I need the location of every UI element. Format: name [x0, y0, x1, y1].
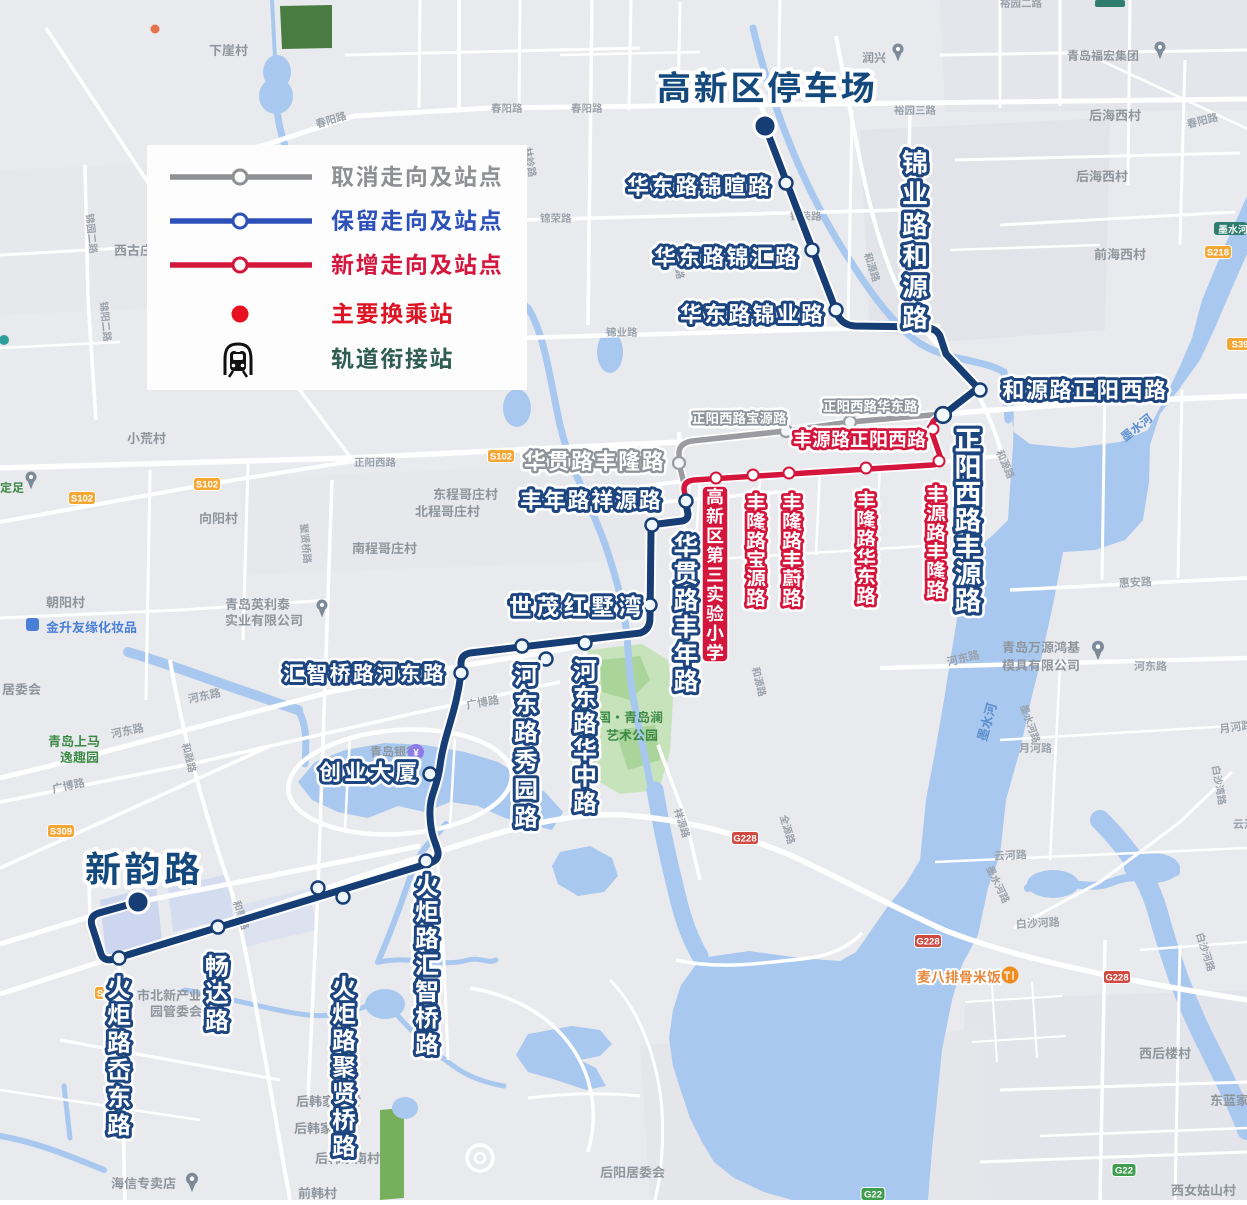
svg-text:S218: S218: [1207, 247, 1229, 258]
svg-text:G228: G228: [733, 833, 756, 844]
svg-text:S102: S102: [490, 451, 512, 462]
svg-text:G228: G228: [916, 936, 939, 947]
svg-text:G22: G22: [1115, 1165, 1133, 1176]
svg-text:G22: G22: [864, 1189, 882, 1200]
svg-text:S102: S102: [71, 493, 93, 504]
svg-text:S102: S102: [196, 479, 218, 490]
svg-text:S309: S309: [50, 826, 72, 837]
svg-text:S39: S39: [1232, 339, 1247, 350]
svg-text:G228: G228: [1105, 972, 1128, 983]
